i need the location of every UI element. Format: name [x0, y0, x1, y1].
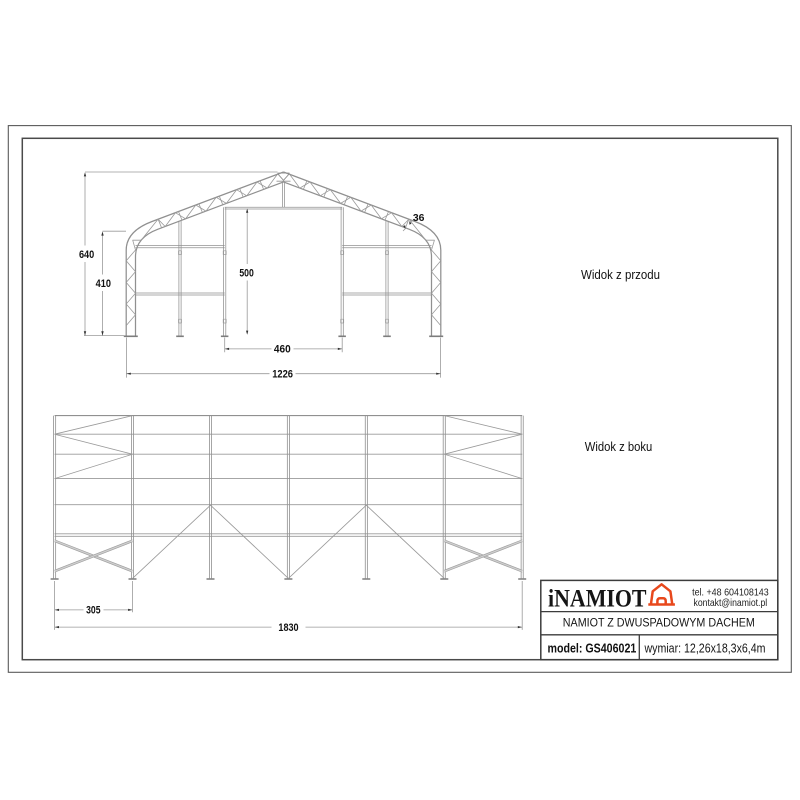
svg-text:640: 640: [79, 249, 94, 261]
svg-text:500: 500: [239, 268, 254, 280]
svg-text:Widok z przodu: Widok z przodu: [581, 267, 660, 282]
svg-text:305: 305: [86, 605, 100, 617]
svg-text:kontakt@inamiot.pl: kontakt@inamiot.pl: [694, 598, 768, 609]
svg-text:460: 460: [274, 344, 291, 356]
svg-text:1830: 1830: [278, 622, 298, 634]
svg-text:model: GS406021: model: GS406021: [548, 641, 637, 655]
svg-text:1226: 1226: [272, 368, 293, 380]
svg-text:wymiar: 12,26x18,3x6,4m: wymiar: 12,26x18,3x6,4m: [644, 641, 766, 655]
svg-text:Widok z boku: Widok z boku: [585, 439, 653, 454]
svg-text:410: 410: [96, 278, 111, 290]
svg-text:36: 36: [413, 213, 425, 224]
svg-text:NAMIOT Z DWUSPADOWYM DACHEM: NAMIOT Z DWUSPADOWYM DACHEM: [563, 615, 755, 629]
svg-text:iNAMIOT: iNAMIOT: [548, 583, 647, 612]
